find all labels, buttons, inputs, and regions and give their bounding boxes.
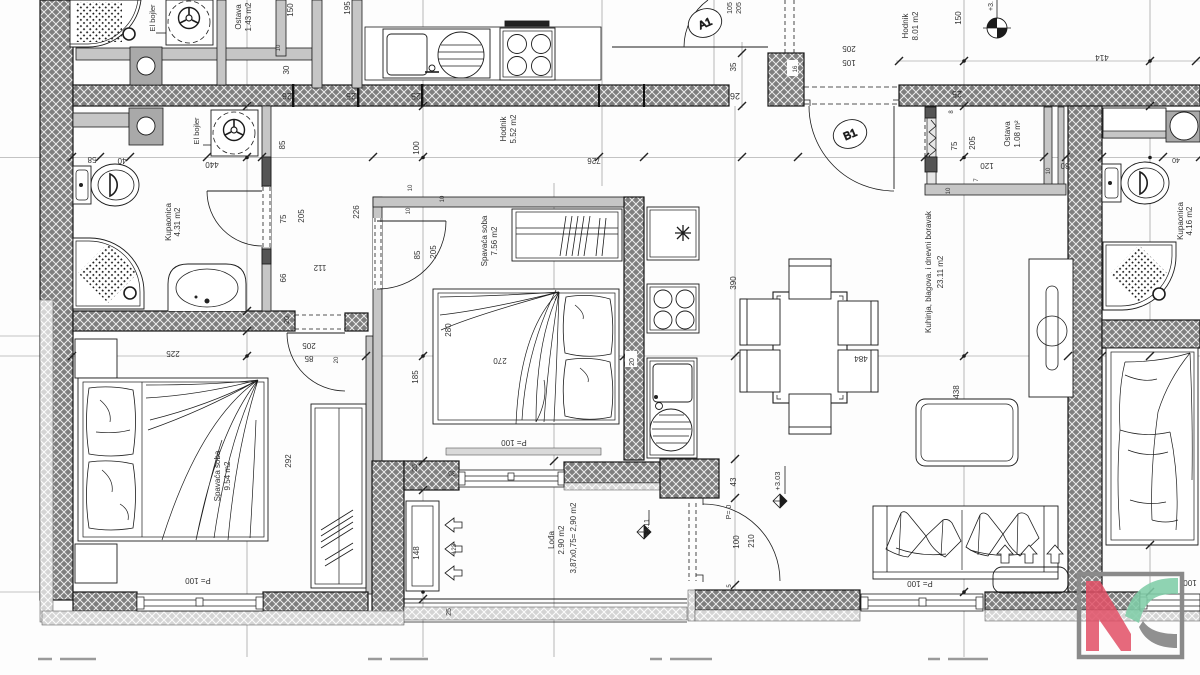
svg-text:40: 40 [117, 156, 126, 165]
svg-text:25: 25 [411, 91, 421, 101]
svg-text:4.31 m2: 4.31 m2 [173, 207, 182, 236]
svg-text:20: 20 [284, 316, 291, 324]
svg-text:43: 43 [729, 477, 738, 486]
svg-text:Lođa: Lođa [547, 531, 556, 549]
svg-text:75: 75 [950, 141, 959, 150]
svg-text:66: 66 [279, 273, 288, 282]
svg-text:120: 120 [980, 161, 994, 170]
svg-text:40: 40 [1172, 156, 1180, 163]
svg-text:123: 123 [452, 543, 458, 554]
svg-text:185: 185 [411, 370, 420, 384]
svg-text:25: 25 [952, 89, 962, 99]
svg-text:10: 10 [1046, 167, 1052, 174]
svg-text:7.56 m2: 7.56 m2 [490, 226, 499, 255]
svg-text:P= 100: P= 100 [907, 579, 933, 588]
svg-text:150: 150 [954, 11, 963, 25]
svg-text:30: 30 [282, 65, 291, 74]
svg-text:205: 205 [302, 341, 316, 350]
svg-text:+3.11: +3.11 [642, 519, 651, 537]
svg-text:20: 20 [629, 358, 636, 366]
svg-text:148: 148 [412, 546, 421, 560]
svg-text:414: 414 [1095, 53, 1109, 62]
svg-text:150: 150 [286, 3, 295, 17]
svg-text:10: 10 [946, 187, 952, 194]
svg-text:El bojler: El bojler [192, 117, 201, 145]
svg-text:10: 10 [408, 184, 414, 191]
svg-text:100: 100 [1183, 578, 1197, 587]
svg-text:25: 25 [446, 608, 453, 616]
svg-text:210: 210 [747, 534, 756, 548]
svg-text:Kupaonica: Kupaonica [1176, 202, 1185, 240]
svg-text:Ostava: Ostava [234, 4, 243, 30]
svg-text:Hodnik: Hodnik [499, 116, 508, 142]
svg-text:1.08 m²: 1.08 m² [1013, 120, 1022, 147]
svg-text:10: 10 [440, 195, 446, 202]
svg-text:25: 25 [412, 464, 419, 472]
svg-text:280: 280 [444, 323, 453, 337]
svg-text:+3.03: +3.03 [773, 472, 782, 491]
svg-text:26: 26 [730, 91, 740, 101]
svg-text:292: 292 [284, 454, 293, 468]
svg-text:+3.: +3. [988, 1, 995, 11]
svg-text:4.16 m2: 4.16 m2 [1185, 206, 1194, 235]
svg-text:438: 438 [952, 385, 961, 399]
svg-text:205: 205 [968, 136, 977, 150]
svg-text:P= 100: P= 100 [501, 438, 527, 447]
svg-text:440: 440 [205, 160, 219, 169]
svg-text:10: 10 [406, 207, 412, 214]
svg-text:Kupaonica: Kupaonica [164, 203, 173, 241]
svg-text:P= 100: P= 100 [185, 576, 211, 585]
svg-text:726: 726 [587, 156, 601, 165]
svg-text:112: 112 [313, 263, 326, 272]
svg-text:100: 100 [732, 535, 741, 549]
svg-text:205: 205 [429, 245, 438, 259]
svg-text:85: 85 [278, 140, 287, 149]
svg-text:270: 270 [493, 356, 507, 365]
svg-text:100: 100 [412, 141, 421, 155]
svg-text:105: 105 [842, 58, 856, 67]
svg-text:8.01 m2: 8.01 m2 [911, 11, 920, 40]
svg-text:75: 75 [279, 214, 288, 223]
svg-text:105: 105 [727, 2, 734, 14]
svg-text:35: 35 [729, 62, 738, 71]
svg-text:10: 10 [276, 44, 282, 51]
svg-text:Ostava: Ostava [1003, 121, 1012, 147]
svg-text:23.11 m2: 23.11 m2 [936, 255, 945, 288]
svg-text:484: 484 [854, 354, 868, 363]
svg-text:30: 30 [1060, 161, 1069, 170]
svg-text:205: 205 [297, 209, 306, 223]
svg-text:390: 390 [729, 276, 738, 290]
svg-text:195: 195 [343, 1, 352, 15]
svg-text:58: 58 [87, 155, 96, 164]
svg-text:25: 25 [346, 91, 356, 101]
svg-text:2.90 m2: 2.90 m2 [557, 525, 566, 554]
svg-text:225: 225 [166, 349, 180, 358]
svg-text:35: 35 [448, 469, 456, 476]
svg-text:Hodnik: Hodnik [901, 13, 910, 39]
svg-text:3,87x0,75= 2,90 m2: 3,87x0,75= 2,90 m2 [569, 502, 578, 573]
svg-text:205: 205 [736, 2, 743, 14]
svg-text:El bojler: El bojler [148, 4, 157, 32]
svg-text:226: 226 [352, 205, 361, 219]
svg-text:26: 26 [282, 91, 292, 101]
svg-text:85: 85 [304, 354, 313, 363]
svg-text:5.52 m2: 5.52 m2 [509, 114, 518, 143]
svg-text:Spavaća soba: Spavaća soba [213, 450, 222, 501]
svg-text:20: 20 [334, 356, 340, 363]
svg-text:9.54 m2: 9.54 m2 [223, 461, 232, 490]
svg-text:85: 85 [413, 250, 422, 259]
svg-text:205: 205 [842, 44, 856, 53]
svg-text:1.43 m2: 1.43 m2 [244, 2, 253, 31]
svg-text:Spavaća soba: Spavaća soba [480, 215, 489, 266]
svg-text:16: 16 [793, 65, 799, 72]
svg-text:P= 0: P= 0 [726, 505, 733, 520]
svg-text:Kuhinja, blagova. i dnevni bor: Kuhinja, blagova. i dnevni boravak [924, 210, 933, 333]
